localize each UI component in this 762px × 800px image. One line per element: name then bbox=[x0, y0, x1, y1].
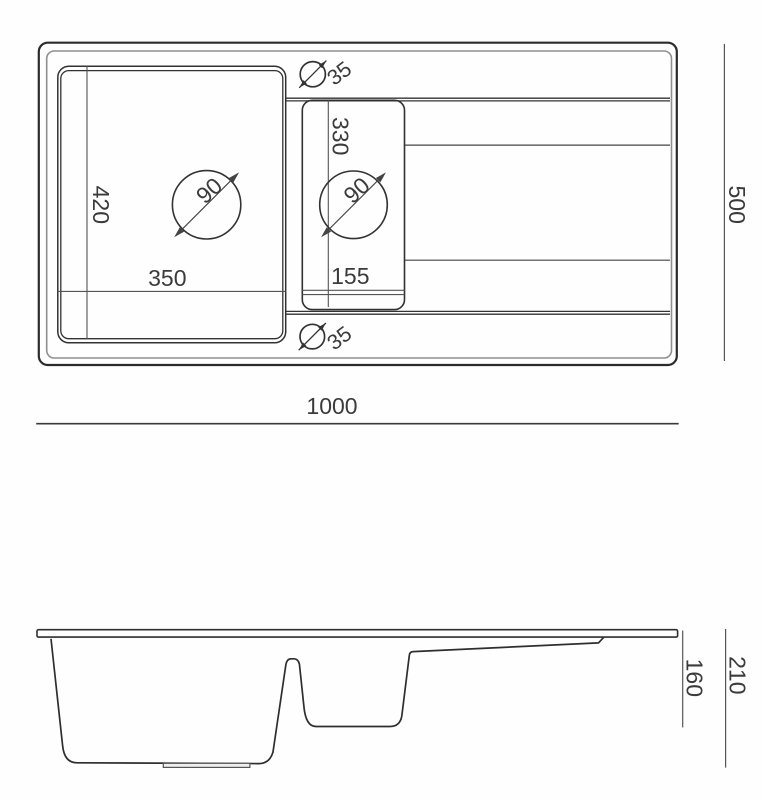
svg-text:210: 210 bbox=[724, 656, 750, 694]
svg-text:90: 90 bbox=[338, 172, 374, 208]
svg-text:155: 155 bbox=[331, 263, 369, 289]
svg-text:1000: 1000 bbox=[306, 393, 357, 419]
svg-text:350: 350 bbox=[148, 265, 186, 291]
svg-text:420: 420 bbox=[88, 186, 114, 224]
svg-text:330: 330 bbox=[328, 117, 354, 155]
svg-text:35: 35 bbox=[323, 57, 357, 91]
svg-text:160: 160 bbox=[682, 659, 708, 697]
svg-text:35: 35 bbox=[323, 321, 357, 355]
svg-text:90: 90 bbox=[191, 172, 227, 208]
svg-text:500: 500 bbox=[724, 186, 750, 224]
